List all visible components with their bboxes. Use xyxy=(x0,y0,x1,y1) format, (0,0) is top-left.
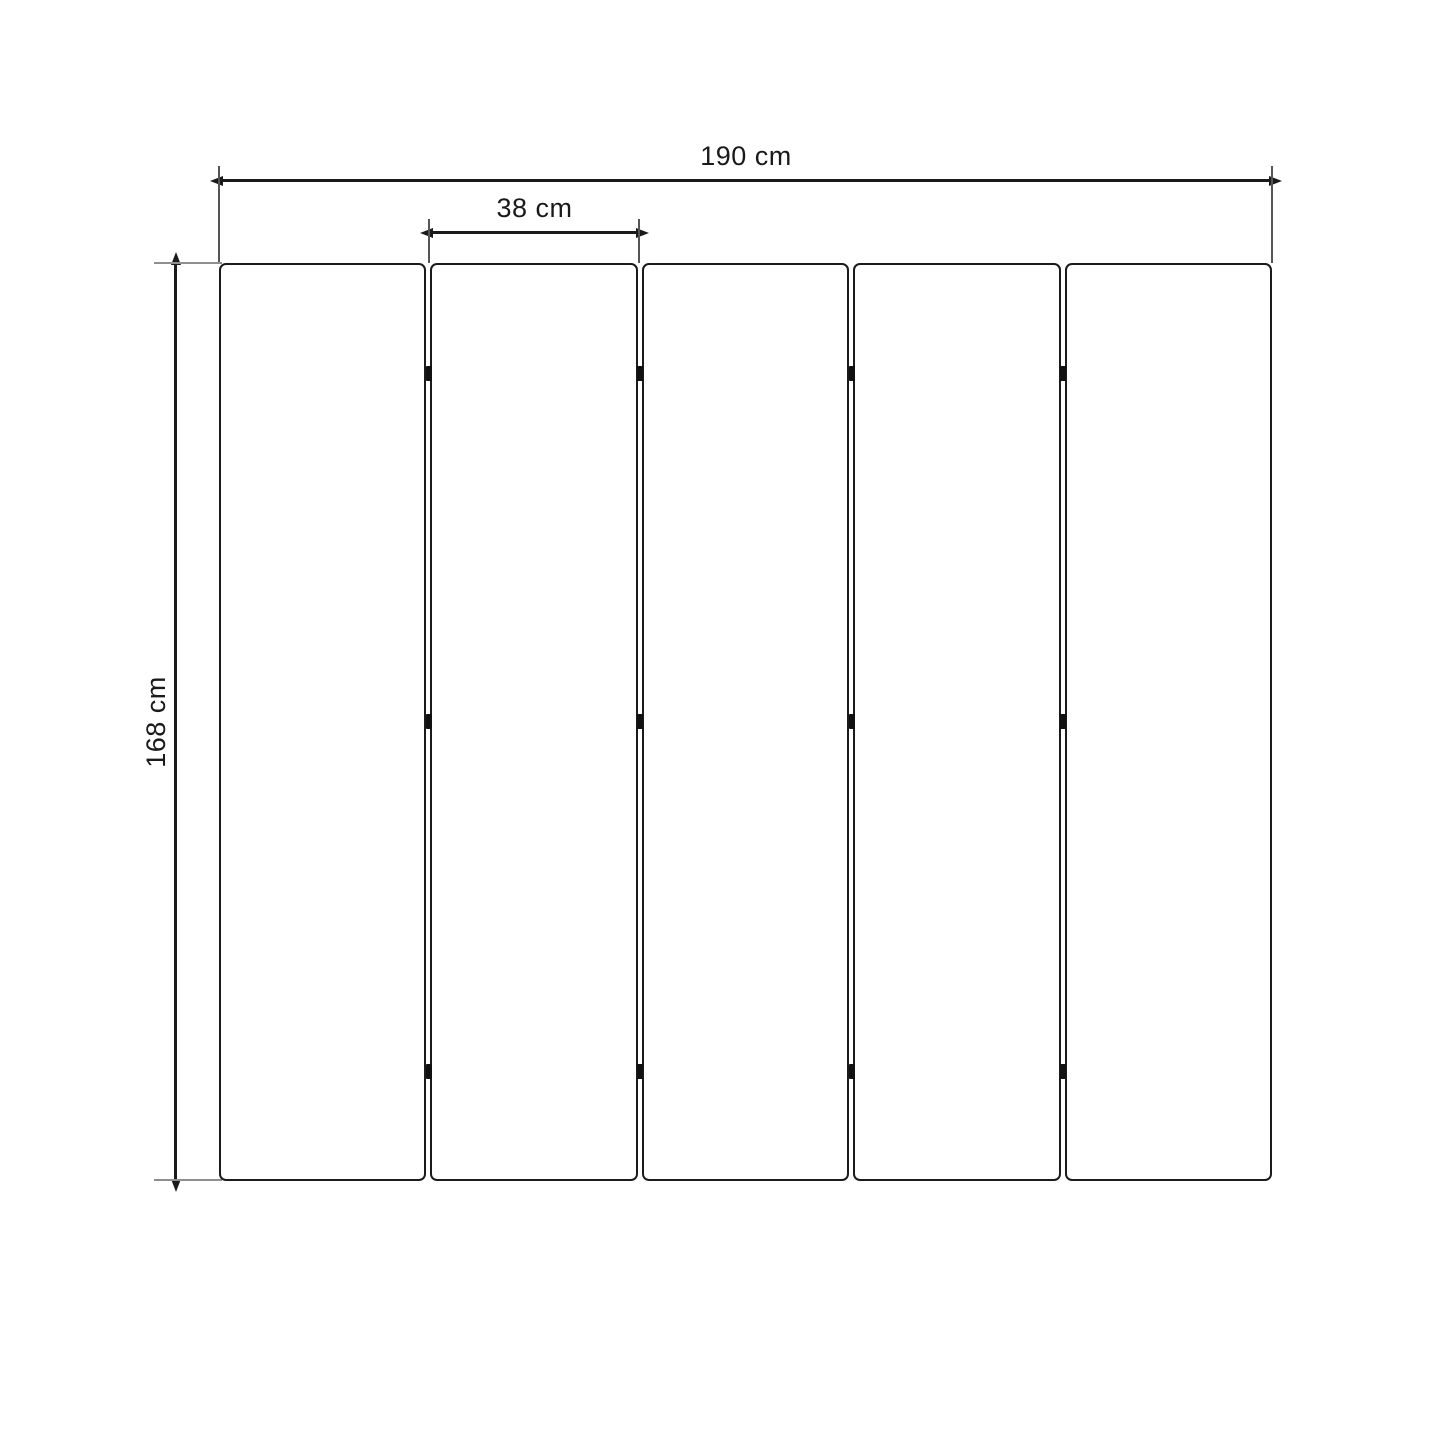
panel-2 xyxy=(430,263,637,1181)
slat-width-dimension-label: 38 cm xyxy=(430,193,639,224)
dimension-diagram: 190 cm 38 cm 168 cm xyxy=(0,0,1445,1445)
height-dimension-line xyxy=(174,264,177,1180)
hinge-icon xyxy=(849,1064,855,1079)
extension-line-slat-right xyxy=(638,219,640,263)
hinge-icon xyxy=(1060,1064,1066,1079)
hinge-icon xyxy=(637,366,643,381)
hinge-icon xyxy=(1060,366,1066,381)
extension-line-slat-left xyxy=(428,219,430,263)
extension-line-height-top xyxy=(154,262,222,264)
slat-width-dimension-line xyxy=(432,231,637,234)
panel-1 xyxy=(219,263,426,1181)
hinge-icon xyxy=(849,714,855,729)
total-width-dimension-line xyxy=(222,179,1270,182)
height-dimension-label: 168 cm xyxy=(141,662,171,782)
hinge-icon xyxy=(426,714,432,729)
hinge-icon xyxy=(637,714,643,729)
hinge-icon xyxy=(426,366,432,381)
total-width-dimension-label: 190 cm xyxy=(221,141,1271,172)
panel-3 xyxy=(642,263,849,1181)
hinge-icon xyxy=(637,1064,643,1079)
extension-line-height-bottom xyxy=(154,1179,222,1181)
arrowhead-left-icon xyxy=(420,228,433,238)
panel-5 xyxy=(1065,263,1272,1181)
panel-4 xyxy=(853,263,1060,1181)
hinge-icon xyxy=(849,366,855,381)
panel-group xyxy=(219,263,1272,1181)
extension-line-total-right xyxy=(1271,166,1273,263)
extension-line-total-left xyxy=(218,166,220,263)
hinge-icon xyxy=(1060,714,1066,729)
hinge-icon xyxy=(426,1064,432,1079)
arrowhead-left-icon xyxy=(210,176,223,186)
